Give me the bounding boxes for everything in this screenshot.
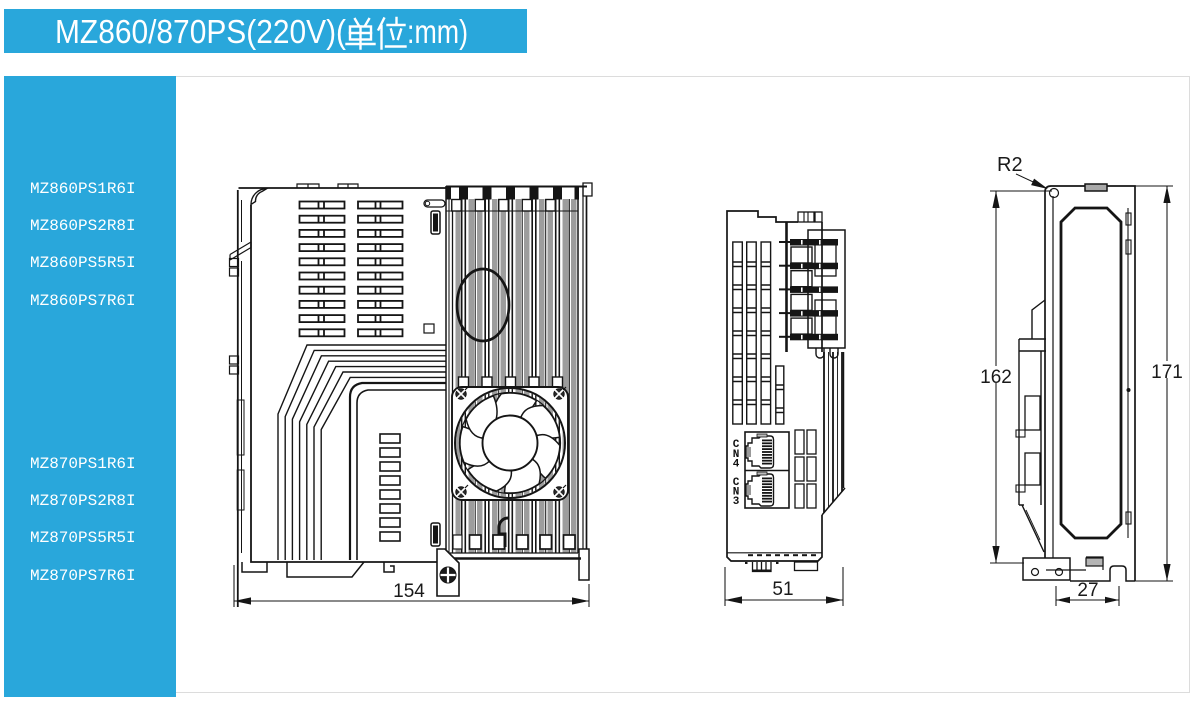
svg-text:27: 27 xyxy=(1077,580,1098,601)
svg-text:MZ870PS2R8I: MZ870PS2R8I xyxy=(30,492,136,510)
svg-text:MZ870PS7R6I: MZ870PS7R6I xyxy=(30,567,136,585)
svg-text:154: 154 xyxy=(393,581,425,602)
svg-text::mm): :mm) xyxy=(407,13,468,50)
svg-text:4: 4 xyxy=(733,459,740,471)
svg-text:162: 162 xyxy=(980,367,1012,388)
svg-text:MZ860PS7R6I: MZ860PS7R6I xyxy=(30,292,136,310)
svg-text:MZ860PS5R5I: MZ860PS5R5I xyxy=(30,254,136,272)
svg-text:MZ870PS5R5I: MZ870PS5R5I xyxy=(30,529,136,547)
svg-text:171: 171 xyxy=(1151,362,1183,383)
svg-text:3: 3 xyxy=(733,496,740,508)
svg-text:MZ870PS1R6I: MZ870PS1R6I xyxy=(30,455,136,473)
svg-text:R2: R2 xyxy=(997,154,1023,176)
svg-text:MZ860PS1R6I: MZ860PS1R6I xyxy=(30,180,136,198)
svg-text:MZ860PS2R8I: MZ860PS2R8I xyxy=(30,217,136,235)
svg-text:MZ860/870PS(220V)(: MZ860/870PS(220V)( xyxy=(55,13,346,50)
svg-text:51: 51 xyxy=(772,579,793,600)
